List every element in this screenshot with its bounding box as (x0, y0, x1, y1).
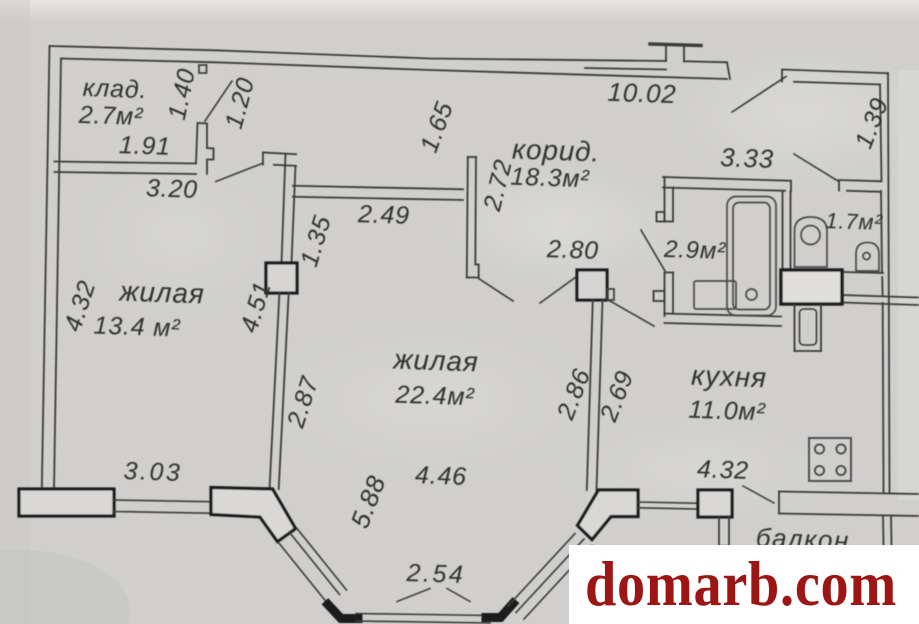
svg-text:3.03: 3.03 (123, 457, 183, 487)
svg-text:кухня: кухня (691, 360, 768, 394)
svg-text:жилая: жилая (117, 275, 205, 309)
svg-text:11.0м²: 11.0м² (688, 396, 767, 427)
svg-text:2.80: 2.80 (546, 235, 600, 265)
svg-text:1.91: 1.91 (119, 131, 172, 161)
svg-text:4.32: 4.32 (697, 455, 750, 485)
svg-text:2.49: 2.49 (357, 200, 411, 230)
svg-text:жилая: жилая (391, 343, 479, 377)
svg-text:4.46: 4.46 (415, 461, 468, 491)
svg-text:2.54: 2.54 (405, 559, 466, 589)
svg-text:2.9м²: 2.9м² (663, 236, 727, 265)
svg-text:18.3м²: 18.3м² (510, 163, 591, 194)
svg-text:2.7м²: 2.7м² (77, 101, 144, 131)
svg-text:клад.: клад. (82, 74, 148, 104)
svg-text:domarb.com: domarb.com (585, 548, 897, 619)
svg-text:22.4м²: 22.4м² (394, 381, 476, 412)
svg-text:1.7м²: 1.7м² (825, 208, 883, 235)
svg-text:10.02: 10.02 (607, 77, 677, 109)
svg-text:3.33: 3.33 (720, 142, 775, 174)
svg-text:3.20: 3.20 (146, 174, 199, 204)
svg-text:13.4 м²: 13.4 м² (93, 311, 181, 342)
